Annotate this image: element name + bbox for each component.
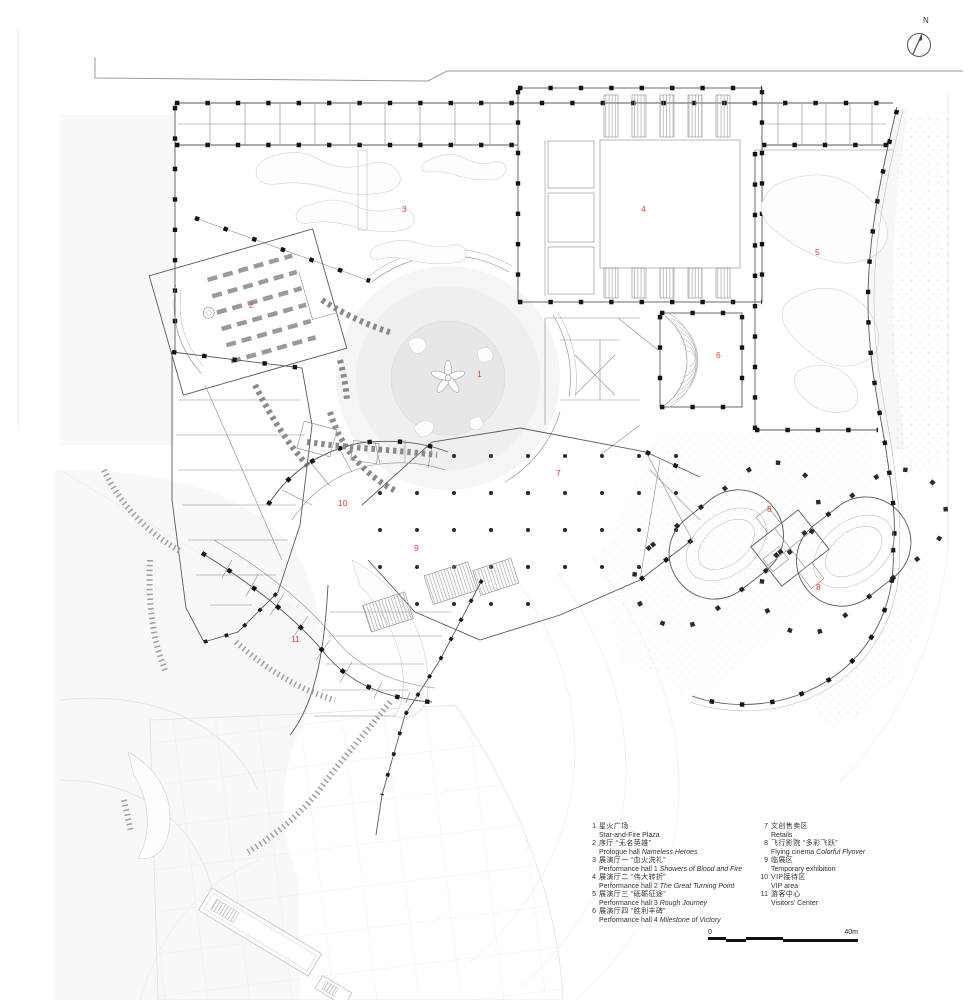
legend-item: 11游客中心Visitors' Center (758, 891, 958, 908)
legend-item-number: 7 (758, 823, 768, 832)
legend-item-number: 9 (758, 857, 768, 866)
performance-hall-6 (660, 313, 742, 408)
legend-item-chinese: 临展区 (771, 857, 793, 866)
plan-number-label: 6 (716, 350, 721, 360)
legend-item-english: Star-and-Fire Plaza (586, 832, 771, 841)
legend-item-number: 8 (758, 840, 768, 849)
legend-item-chinese: 展演厅二 “伟大转折” (599, 874, 666, 883)
legend-item-chinese: VIP接待区 (771, 874, 806, 883)
scale-bar-segment (783, 940, 858, 942)
north-arrow: N (898, 8, 944, 68)
legend-item-number: 11 (758, 891, 768, 900)
scale-bar-segment (726, 940, 746, 942)
plan-number-label: 2 (249, 300, 254, 310)
legend-item: 10VIP接待区VIP area (758, 874, 958, 891)
plan-number-label: 5 (815, 247, 820, 257)
legend-item-english: VIP area (758, 883, 958, 892)
central-service-rooms (545, 318, 658, 455)
legend-item-number: 5 (586, 891, 596, 900)
scale-end-label: 40m (844, 929, 858, 936)
plan-number-label: 10 (338, 498, 348, 508)
legend-item: 1星火广场Star-and-Fire Plaza (586, 823, 771, 840)
legend-item-number: 3 (586, 857, 596, 866)
legend-item-english: Prologue hall Nameless Heroes (586, 849, 771, 858)
legend-item-number: 4 (586, 874, 596, 883)
performance-hall-4 (518, 88, 762, 302)
legend-item: 5展演厅三 “砥砺征途”Performance hall 3 Rough Jou… (586, 891, 771, 908)
plan-number-label: 8 (816, 582, 821, 592)
legend-column-2: 7文创售卖区Retails8飞行影院 “多彩飞跃”Flying cinema C… (758, 823, 958, 908)
legend-item-chinese: 展演厅四 “胜利丰碑” (599, 908, 666, 917)
legend-item: 9临展区Temporary exhibition (758, 857, 958, 874)
legend-item: 2序厅 “无名英雄”Prologue hall Nameless Heroes (586, 840, 771, 857)
legend-item-english: Performance hall 4 Milestone of Victory (586, 917, 771, 926)
legend-item-english: Flying cinema Colorful Flyover (758, 849, 958, 858)
legend-item-chinese: 飞行影院 “多彩飞跃” (771, 840, 838, 849)
plan-number-label: 9 (414, 543, 419, 553)
plan-number-label: 11 (291, 634, 300, 644)
legend-column-1: 1星火广场Star-and-Fire Plaza2序厅 “无名英雄”Prolog… (586, 823, 771, 925)
legend-item: 7文创售卖区Retails (758, 823, 958, 840)
legend-item-english: Retails (758, 832, 958, 841)
legend-item-chinese: 游客中心 (771, 891, 801, 900)
legend-item: 3展演厅一 “血火洗礼”Performance hall 1 Showers o… (586, 857, 771, 874)
legend-item-english: Performance hall 2 The Great Turning Poi… (586, 883, 771, 892)
plan-number-label: 1 (477, 369, 482, 379)
scale-bar-graphic (708, 937, 858, 942)
legend-item-english: Performance hall 1 Showers of Blood and … (586, 866, 771, 875)
legend-item: 6展演厅四 “胜利丰碑”Performance hall 4 Milestone… (586, 908, 771, 925)
garden-court-3 (195, 150, 506, 281)
legend-item-english: Temporary exhibition (758, 866, 958, 875)
scale-bar-segment (746, 937, 784, 939)
legend-item-number: 2 (586, 840, 596, 849)
prologue-hall-2 (149, 229, 347, 395)
legend-item-english: Performance hall 3 Rough Journey (586, 900, 771, 909)
legend-item-number: 6 (586, 908, 596, 917)
legend-item-chinese: 序厅 “无名英雄” (599, 840, 651, 849)
north-arrow-circle (908, 34, 931, 57)
legend-item: 4展演厅二 “伟大转折”Performance hall 2 The Great… (586, 874, 771, 891)
floor-plan-page: { "plan": { "label_color": "#e8402c", "l… (0, 0, 970, 1000)
legend-item-number: 1 (586, 823, 596, 832)
scale-bar: 0 40m (708, 929, 858, 942)
scale-start-label: 0 (708, 929, 712, 936)
plan-number-label: 8 (767, 504, 772, 514)
legend-item-chinese: 展演厅三 “砥砺征途” (599, 891, 666, 900)
legend-item-number: 10 (758, 874, 768, 883)
legend-item-chinese: 展演厅一 “血火洗礼” (599, 857, 666, 866)
legend-item-chinese: 星火广场 (599, 823, 629, 832)
plan-number-label: 3 (402, 204, 407, 214)
legend-item-chinese: 文创售卖区 (771, 823, 808, 832)
plan-number-label: 7 (556, 468, 561, 478)
legend-item: 8飞行影院 “多彩飞跃”Flying cinema Colorful Flyov… (758, 840, 958, 857)
legend-item-english: Visitors' Center (758, 900, 958, 909)
plan-number-label: 4 (641, 204, 646, 214)
scale-bar-segment (708, 937, 726, 939)
north-label: N (923, 16, 929, 25)
